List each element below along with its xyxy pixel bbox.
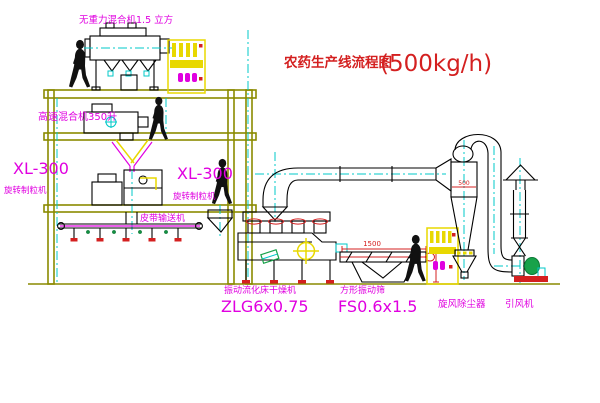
- title-capacity: (500kg/h): [380, 51, 492, 77]
- label-granulator-left-model: XL-300: [13, 159, 69, 178]
- floor-slab-top: [44, 90, 256, 98]
- label-cyclone: 旋风除尘器: [438, 298, 486, 310]
- label-granulator-right-name: 旋转制粒机: [173, 191, 216, 202]
- label-granulator-right-model: XL-300: [177, 164, 233, 183]
- title-text: 农药生产线流程图: [283, 54, 392, 71]
- label-belt-conveyor: 皮带输送机: [140, 212, 185, 224]
- dimension-cyclone-diameter: 500: [458, 180, 470, 187]
- column-right-inner: [228, 90, 234, 284]
- label-dryer-name: 振动流化床干燥机: [224, 284, 296, 296]
- process-flow-diagram: 农药生产线流程图 (500kg/h) 无重力混合机1.5 立方 高速混合机350…: [0, 0, 600, 403]
- label-dryer-model: ZLG6x0.75: [221, 297, 309, 316]
- label-high-speed-mixer: 高速混合机350升: [38, 110, 117, 123]
- floor-slab-lower: [44, 205, 256, 212]
- label-fan: 引风机: [505, 298, 534, 310]
- dimension-sieve-length: 1500: [363, 240, 381, 248]
- label-sieve-name: 方形振动筛: [340, 284, 385, 296]
- label-granulator-left-name: 旋转制粒机: [4, 185, 47, 196]
- column-right-outer: [246, 90, 252, 284]
- label-sieve-model: FS0.6x1.5: [338, 297, 417, 316]
- fluid-bed-dryer: [238, 212, 347, 284]
- label-gravity-mixer: 无重力混合机1.5 立方: [79, 14, 173, 26]
- cyclone-separator: [436, 146, 477, 278]
- gravity-free-mixer: [84, 23, 172, 90]
- worker-top-floor: [69, 40, 90, 88]
- granulator-unit: [92, 140, 162, 205]
- diagram-canvas: 农药生产线流程图 (500kg/h) 无重力混合机1.5 立方 高速混合机350…: [0, 0, 600, 403]
- induced-draft-fan: [512, 256, 548, 282]
- packing-machine-top: [168, 40, 205, 93]
